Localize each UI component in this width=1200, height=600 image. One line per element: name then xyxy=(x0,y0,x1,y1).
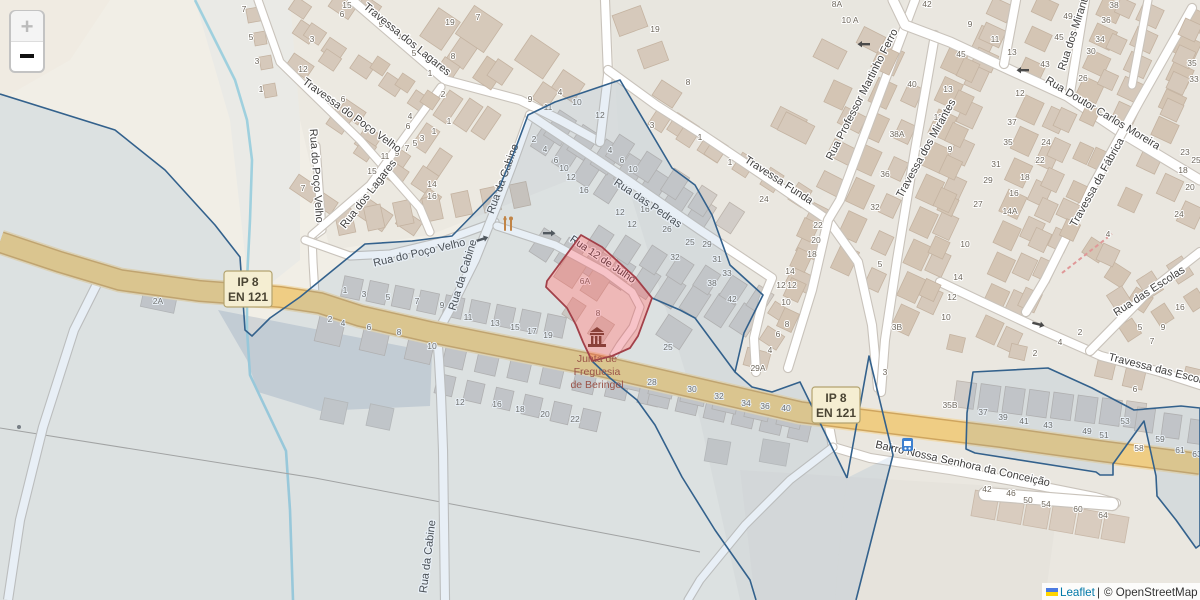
svg-text:7: 7 xyxy=(301,183,306,193)
svg-text:1: 1 xyxy=(728,157,733,167)
svg-text:40: 40 xyxy=(907,79,917,89)
svg-text:24: 24 xyxy=(759,194,769,204)
svg-text:27: 27 xyxy=(973,199,983,209)
svg-text:19: 19 xyxy=(650,24,660,34)
svg-text:14: 14 xyxy=(785,266,795,276)
svg-text:4: 4 xyxy=(558,87,563,97)
svg-text:42: 42 xyxy=(982,484,992,494)
svg-text:9: 9 xyxy=(528,94,533,104)
svg-text:13: 13 xyxy=(943,84,953,94)
svg-text:14: 14 xyxy=(953,272,963,282)
svg-text:58: 58 xyxy=(1134,443,1144,453)
svg-text:38: 38 xyxy=(1109,0,1119,10)
svg-text:18: 18 xyxy=(1178,165,1188,175)
svg-text:24: 24 xyxy=(1041,137,1051,147)
svg-text:34: 34 xyxy=(1095,34,1105,44)
svg-text:12: 12 xyxy=(947,292,957,302)
svg-text:43: 43 xyxy=(1040,59,1050,69)
svg-text:10 A: 10 A xyxy=(841,15,858,25)
svg-text:9: 9 xyxy=(1161,322,1166,332)
svg-text:35: 35 xyxy=(1187,58,1197,68)
svg-text:10: 10 xyxy=(941,312,951,322)
svg-text:6: 6 xyxy=(776,329,781,339)
svg-text:8: 8 xyxy=(686,77,691,87)
svg-text:2: 2 xyxy=(1033,348,1038,358)
svg-text:10: 10 xyxy=(781,297,791,307)
svg-text:3: 3 xyxy=(883,367,888,377)
svg-text:12: 12 xyxy=(787,280,797,290)
svg-text:20: 20 xyxy=(1185,182,1195,192)
svg-text:36: 36 xyxy=(1101,15,1111,25)
svg-text:23: 23 xyxy=(1180,147,1190,157)
svg-text:2: 2 xyxy=(1078,327,1083,337)
svg-text:14A: 14A xyxy=(1002,206,1017,216)
svg-text:4: 4 xyxy=(1106,229,1111,239)
svg-text:1: 1 xyxy=(259,84,264,94)
svg-text:Leaflet: Leaflet xyxy=(1060,586,1096,599)
svg-text:31: 31 xyxy=(991,159,1001,169)
svg-text:3B: 3B xyxy=(892,322,903,332)
svg-text:4: 4 xyxy=(768,345,773,355)
svg-text:18: 18 xyxy=(807,249,817,259)
svg-text:9: 9 xyxy=(948,144,953,154)
svg-text:|: | xyxy=(1097,586,1100,599)
svg-text:7: 7 xyxy=(405,143,410,153)
svg-text:20: 20 xyxy=(811,235,821,245)
svg-text:22: 22 xyxy=(1035,155,1045,165)
svg-text:1: 1 xyxy=(698,132,703,142)
svg-text:8: 8 xyxy=(785,319,790,329)
svg-text:1: 1 xyxy=(428,68,433,78)
svg-text:13: 13 xyxy=(1007,47,1017,57)
svg-text:35: 35 xyxy=(1003,137,1013,147)
svg-text:Freguesia: Freguesia xyxy=(574,366,621,378)
svg-text:7: 7 xyxy=(476,12,481,22)
svg-text:6: 6 xyxy=(1133,384,1138,394)
svg-text:EN 121: EN 121 xyxy=(228,290,268,304)
svg-text:© OpenStreetMap: © OpenStreetMap xyxy=(1104,586,1198,599)
svg-text:46: 46 xyxy=(1006,488,1016,498)
svg-text:26: 26 xyxy=(1078,73,1088,83)
svg-text:3: 3 xyxy=(650,120,655,130)
svg-text:45: 45 xyxy=(1054,32,1064,42)
svg-text:5: 5 xyxy=(413,138,418,148)
svg-text:32: 32 xyxy=(870,202,880,212)
svg-text:22: 22 xyxy=(813,220,823,230)
svg-text:14: 14 xyxy=(427,179,437,189)
svg-text:8A: 8A xyxy=(832,0,843,9)
svg-text:33: 33 xyxy=(1189,74,1199,84)
svg-text:36: 36 xyxy=(880,169,890,179)
svg-text:+: + xyxy=(21,14,34,39)
svg-text:1: 1 xyxy=(432,126,437,136)
svg-text:64: 64 xyxy=(1098,510,1108,520)
svg-text:5: 5 xyxy=(249,32,254,42)
svg-text:de Beringel: de Beringel xyxy=(570,379,623,391)
svg-text:50: 50 xyxy=(1023,495,1033,505)
svg-text:3: 3 xyxy=(420,133,425,143)
svg-text:11: 11 xyxy=(991,34,1000,44)
svg-text:IP 8: IP 8 xyxy=(825,391,846,405)
svg-text:EN 121: EN 121 xyxy=(816,406,856,420)
svg-text:35B: 35B xyxy=(942,400,957,410)
svg-text:16: 16 xyxy=(427,191,437,201)
svg-text:6: 6 xyxy=(340,9,345,19)
svg-text:29: 29 xyxy=(983,175,993,185)
svg-text:2: 2 xyxy=(441,89,446,99)
svg-text:24: 24 xyxy=(1174,209,1184,219)
svg-text:54: 54 xyxy=(1041,499,1051,509)
svg-text:IP 8: IP 8 xyxy=(237,275,258,289)
svg-text:42: 42 xyxy=(922,0,932,9)
svg-text:12: 12 xyxy=(1015,88,1025,98)
svg-text:30: 30 xyxy=(1086,46,1096,56)
svg-text:5: 5 xyxy=(878,259,883,269)
svg-text:38A: 38A xyxy=(889,129,904,139)
svg-text:3: 3 xyxy=(310,34,315,44)
svg-text:12: 12 xyxy=(776,280,786,290)
svg-text:1: 1 xyxy=(447,116,452,126)
svg-text:16: 16 xyxy=(1175,302,1185,312)
svg-text:19: 19 xyxy=(445,17,455,27)
svg-text:8: 8 xyxy=(451,51,456,61)
svg-text:12: 12 xyxy=(298,64,308,74)
svg-text:45: 45 xyxy=(956,49,966,59)
svg-text:37: 37 xyxy=(1007,117,1017,127)
svg-text:6: 6 xyxy=(406,121,411,131)
svg-text:Junta de: Junta de xyxy=(577,353,617,365)
svg-text:4: 4 xyxy=(1058,337,1063,347)
svg-text:9: 9 xyxy=(968,19,973,29)
svg-text:16: 16 xyxy=(1009,188,1019,198)
svg-text:7: 7 xyxy=(242,4,247,14)
svg-text:18: 18 xyxy=(1020,172,1030,182)
svg-text:3: 3 xyxy=(255,56,260,66)
svg-text:25: 25 xyxy=(1191,155,1200,165)
svg-text:60: 60 xyxy=(1073,504,1083,514)
svg-text:7: 7 xyxy=(1150,336,1155,346)
svg-text:5: 5 xyxy=(1138,322,1143,332)
svg-text:10: 10 xyxy=(960,239,970,249)
svg-text:4: 4 xyxy=(408,111,413,121)
svg-text:29A: 29A xyxy=(750,363,765,373)
